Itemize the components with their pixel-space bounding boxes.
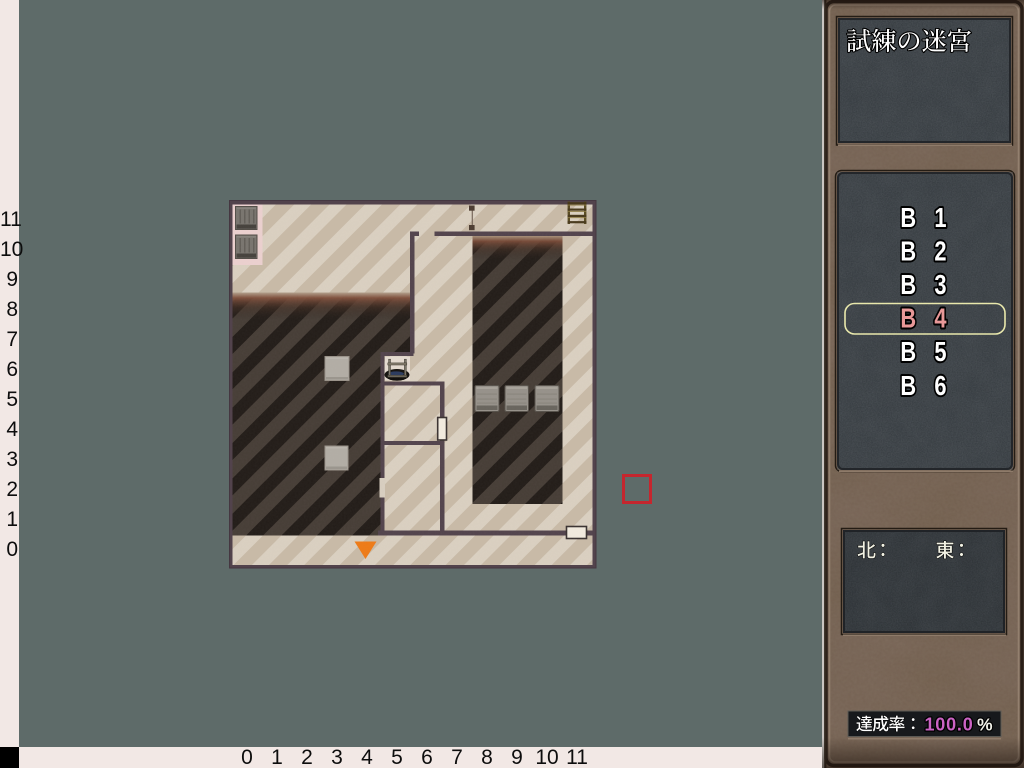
svg-text:%: % [977,715,993,735]
svg-text:B 4: B 4 [900,303,952,334]
svg-text:B 3: B 3 [900,269,952,300]
svg-text:B 5: B 5 [900,337,952,368]
svg-text:B 2: B 2 [900,236,952,267]
svg-text:B 1: B 1 [900,202,952,233]
svg-text:B 6: B 6 [900,370,952,401]
svg-text:100.0: 100.0 [925,715,974,735]
